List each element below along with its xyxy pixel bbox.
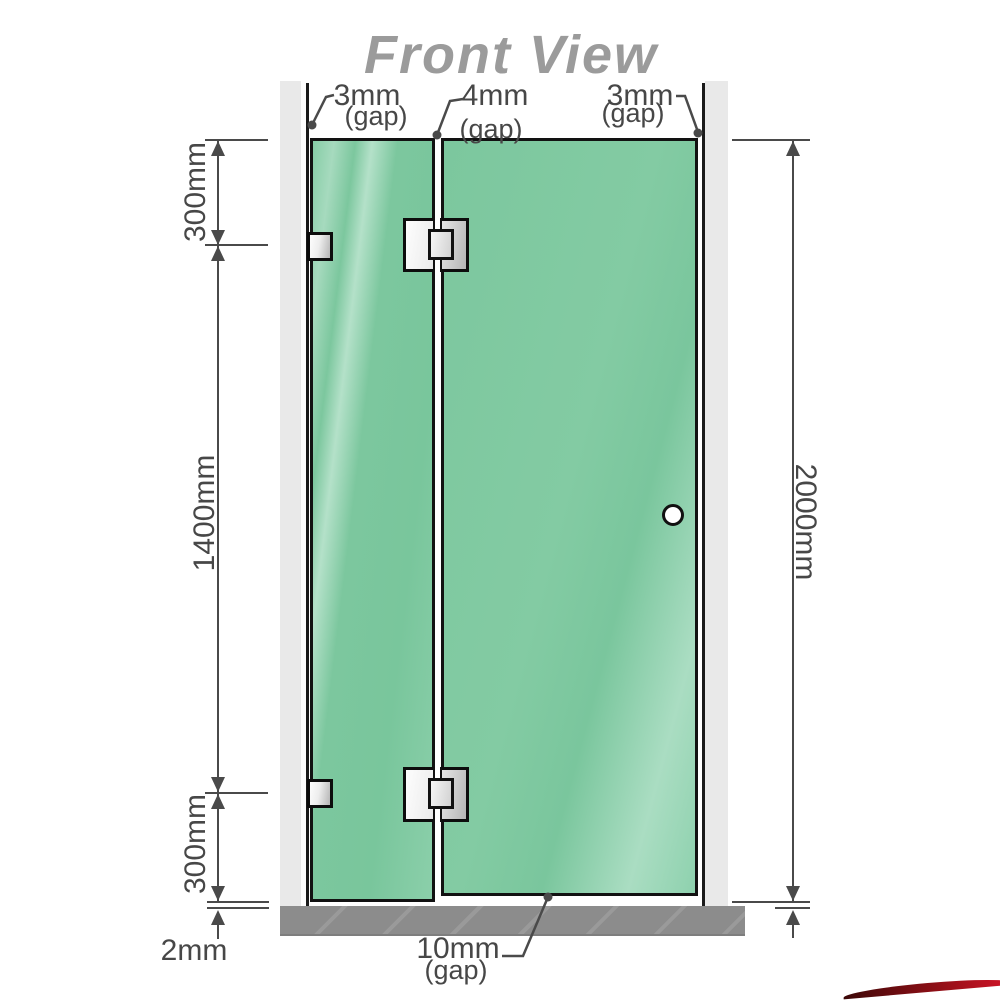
shower-screen-front-view-diagram: Front View 300mm 1400mm 300mm 2mm [0, 0, 1000, 1000]
arrowhead [786, 141, 800, 156]
diagram-title: Front View [261, 24, 761, 86]
bottom-hinge [403, 767, 469, 822]
arrowhead [211, 886, 225, 901]
hinge-gap-slot [433, 258, 442, 272]
arrowhead [211, 230, 225, 245]
arrowhead [786, 886, 800, 901]
extension-line-right-floor [775, 907, 810, 909]
bottom-wall-bracket [307, 779, 333, 808]
gap-label-top-middle-note: (gap) [431, 116, 551, 143]
dim-line-2mm [217, 925, 219, 939]
corner-logo-fragment [843, 976, 1000, 1000]
arrowhead [211, 794, 225, 809]
floor-base [280, 906, 745, 936]
right-wall-channel [705, 81, 728, 908]
left-wall-channel [280, 81, 301, 908]
top-wall-bracket [307, 232, 333, 261]
right-wall-edge-line [702, 83, 705, 908]
hinge-clamp-plate [428, 778, 454, 809]
dim-line-2000 [792, 141, 794, 902]
arrowhead [211, 777, 225, 792]
hinge-clamp-plate [428, 229, 454, 260]
arrowhead [211, 246, 225, 261]
door-knob [662, 504, 684, 526]
hinge-gap-slot [433, 808, 442, 822]
dim-label-2mm: 2mm [144, 936, 244, 966]
arrowhead-2mm [211, 910, 225, 925]
dim-line-right-gap [792, 925, 794, 938]
extension-line-floor-top [207, 907, 269, 909]
gap-label-top-right-note: (gap) [573, 100, 693, 127]
extension-line-right-bottom [732, 901, 810, 903]
dim-label-300-top: 300mm [181, 132, 211, 252]
gap-label-bottom-note: (gap) [396, 957, 516, 984]
top-hinge [403, 218, 469, 272]
dim-label-2000: 2000mm [790, 447, 820, 597]
door-glass-panel [441, 138, 698, 896]
arrowhead [211, 141, 225, 156]
gap-label-top-left-note: (gap) [316, 103, 436, 130]
dim-line-1400 [217, 245, 219, 793]
gap-label-top-middle-value: 4mm [445, 81, 545, 111]
dim-label-1400: 1400mm [190, 443, 220, 583]
dim-label-300-bottom: 300mm [181, 784, 211, 904]
arrowhead [786, 910, 800, 925]
